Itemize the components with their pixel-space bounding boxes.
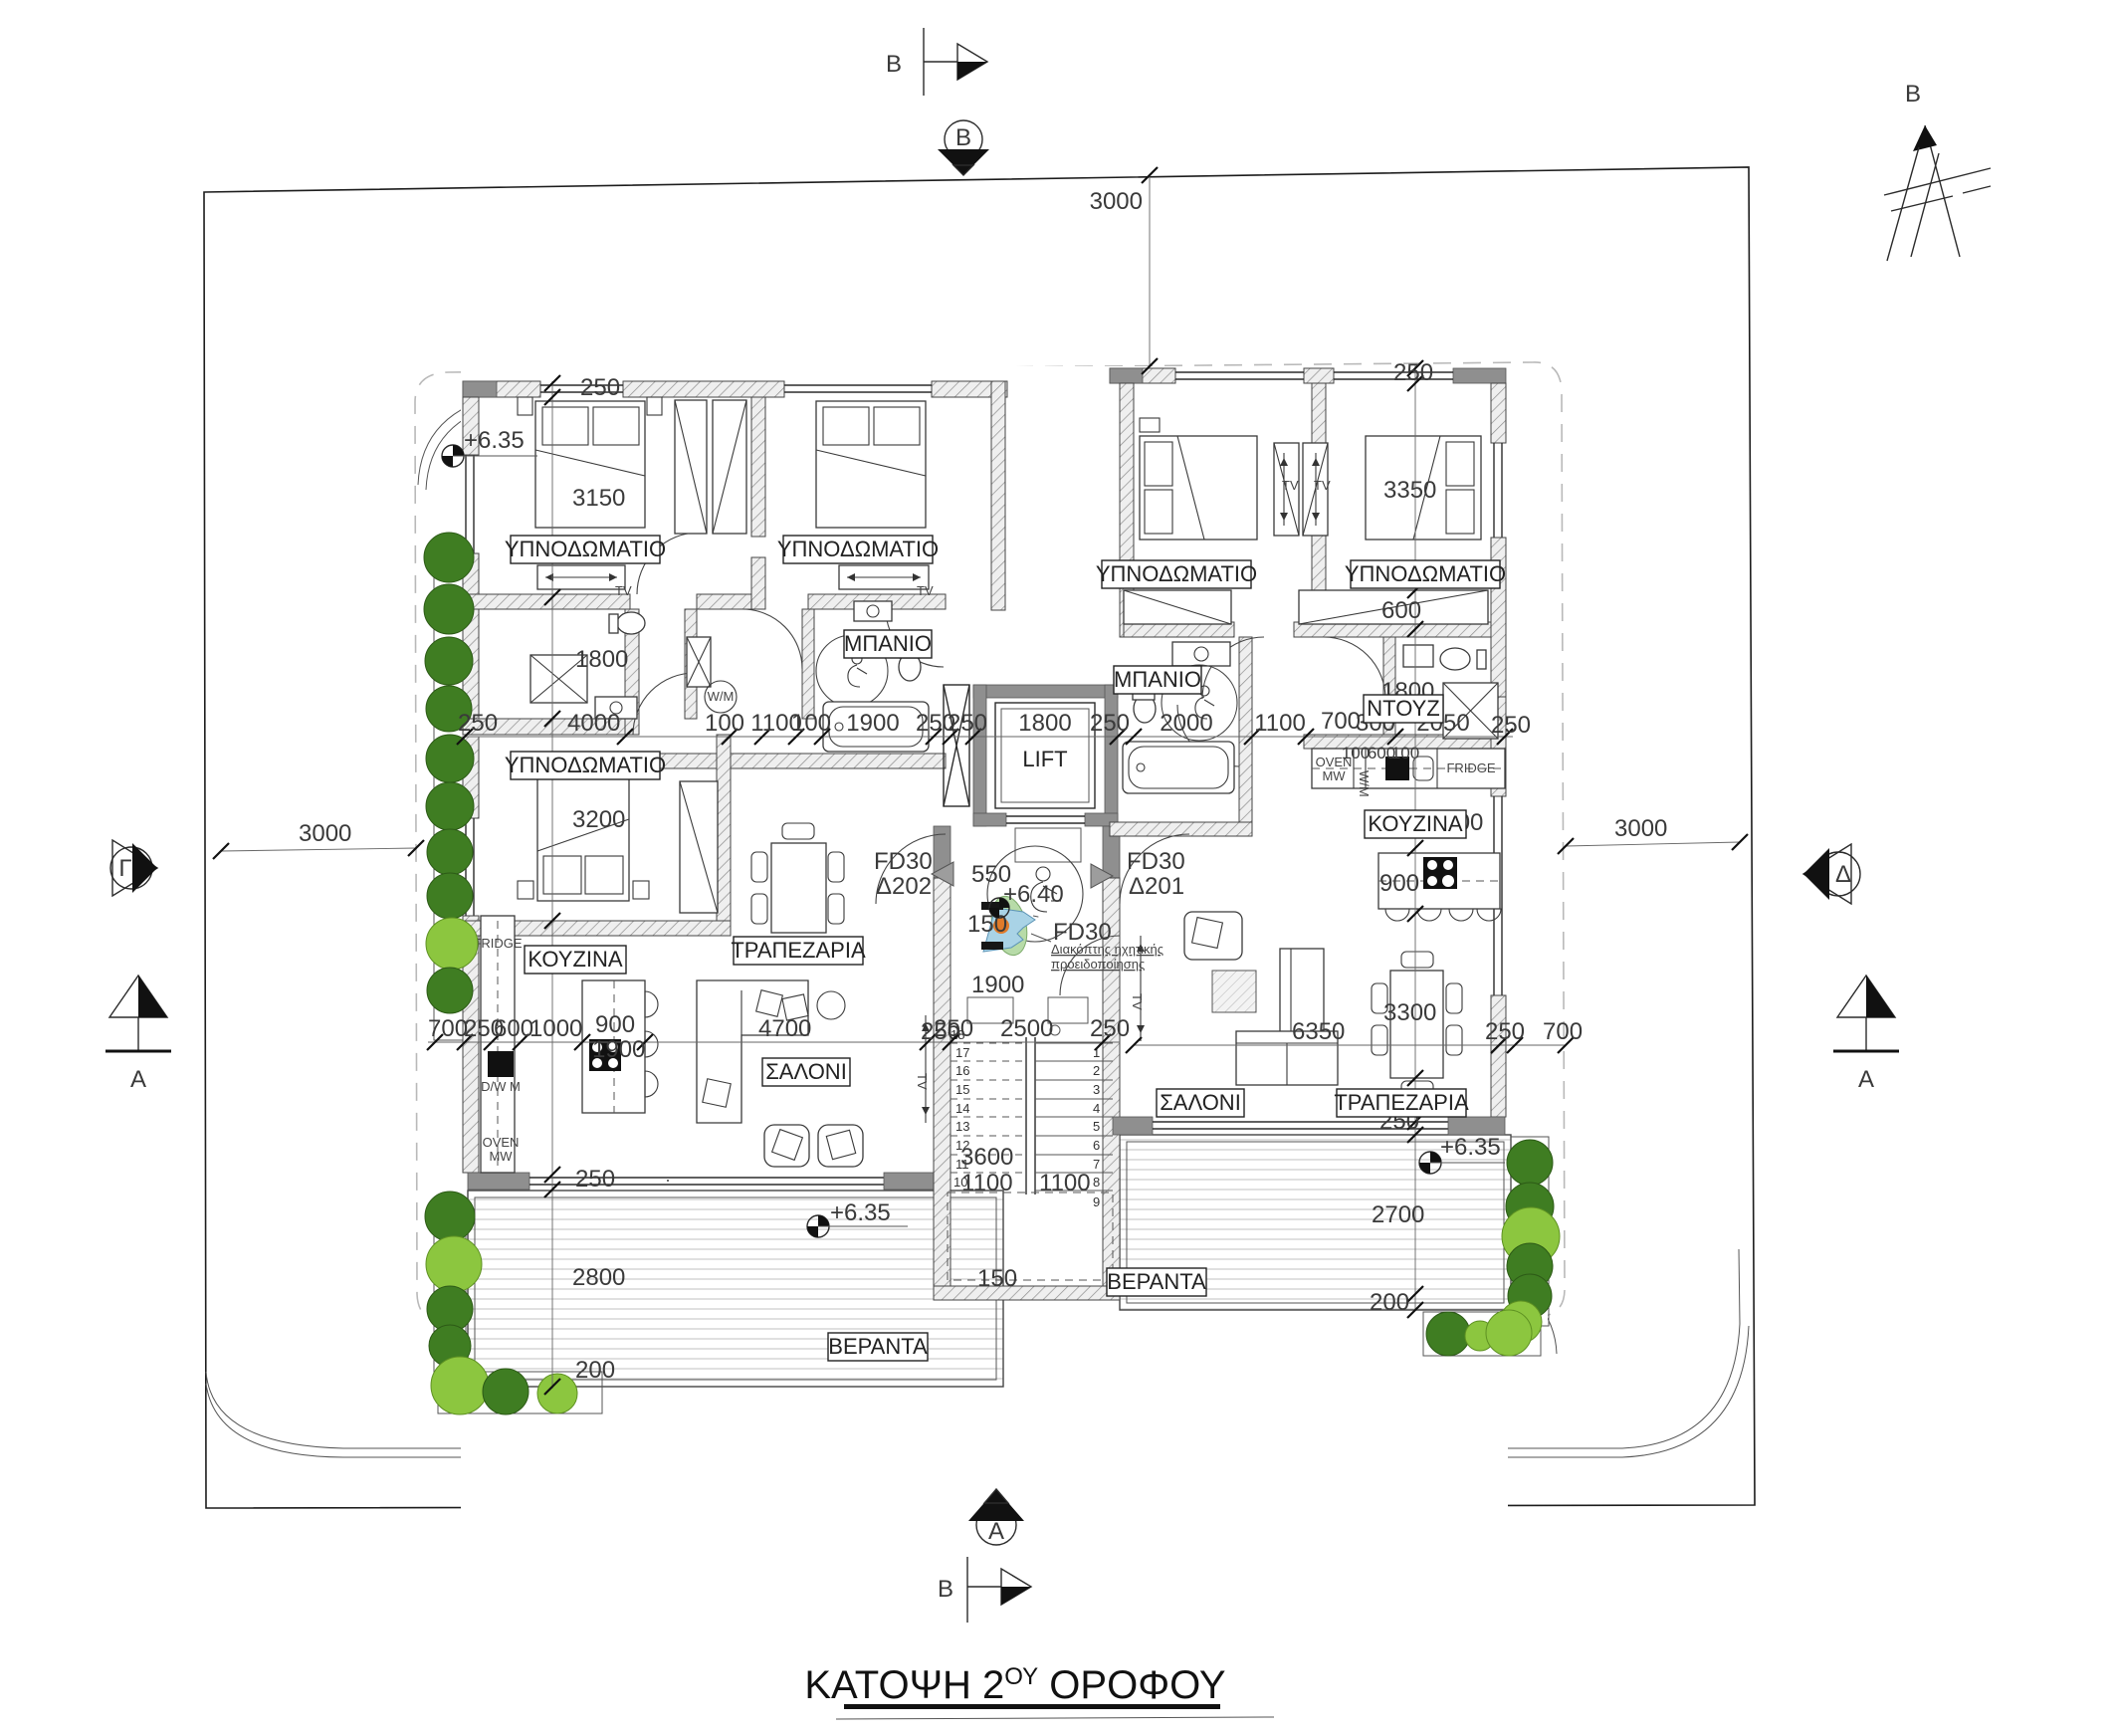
dim-1900-low: 1900	[592, 1036, 645, 1063]
wm-right-label: W/M	[1357, 770, 1372, 797]
svg-text:+6.35: +6.35	[464, 427, 525, 454]
dim-250-top-left: 250	[580, 374, 620, 401]
dim-1900-tub: 1900	[846, 710, 899, 737]
dim-900-right: 900	[1379, 870, 1419, 897]
svg-text:ΜΠΑΝΙΟ: ΜΠΑΝΙΟ	[844, 631, 932, 656]
stair-num-3: 3	[1093, 1082, 1100, 1097]
stair-num-4: 4	[1093, 1101, 1100, 1116]
dim-100c: 100	[1342, 744, 1370, 762]
dim-3350: 3350	[1383, 477, 1436, 504]
dim-600-low: 600	[494, 1015, 533, 1042]
stair-num-17: 17	[955, 1045, 969, 1060]
section-a-left: A	[106, 976, 171, 1093]
dim-250-veranda-left: 250	[575, 1166, 615, 1193]
dim-1900-hall: 1900	[971, 972, 1024, 998]
dim-right-3000: 3000	[1614, 815, 1667, 842]
north-arrow: Β	[1884, 81, 1991, 261]
svg-text:+6.35: +6.35	[830, 1199, 891, 1226]
section-a-right: A	[1833, 976, 1899, 1093]
svg-text:B: B	[955, 124, 971, 151]
wardrobe-right-mid: TV TV	[1274, 443, 1331, 536]
label-shower-right: ΝΤΟΥΖ	[1364, 695, 1443, 723]
dim-250a: 250	[458, 710, 498, 737]
label-living-left: ΣΑΛΟΝΙ	[762, 1058, 850, 1086]
dim-2000: 2000	[1160, 710, 1212, 737]
svg-text:ΚΟΥΖΙΝΑ: ΚΟΥΖΙΝΑ	[1368, 811, 1463, 836]
label-bedroom-4: ΥΠΝΟΔΩΜΑΤΙΟ	[1096, 560, 1257, 588]
stair-num-6: 6	[1093, 1138, 1100, 1153]
bed-2	[816, 401, 926, 528]
stair-num-7: 7	[1093, 1157, 1100, 1172]
dim-250-stair-r: 250	[1090, 1015, 1130, 1042]
dim-250d: 250	[1090, 710, 1130, 737]
dim-250-top-right: 250	[1393, 359, 1433, 386]
svg-text:ΤΡΑΠΕΖΑΡΙΑ: ΤΡΑΠΕΖΑΡΙΑ	[1334, 1090, 1469, 1115]
label-veranda-right: ΒΕΡΑΝΤΑ	[1107, 1268, 1206, 1296]
label-kitchen-right: ΚΟΥΖΙΝΑ	[1365, 810, 1466, 838]
dim-3200: 3200	[572, 806, 625, 833]
label-veranda-left: ΒΕΡΑΝΤΑ	[828, 1333, 928, 1361]
mw-left-label: MW	[489, 1149, 513, 1164]
dim-3600: 3600	[960, 1144, 1013, 1171]
section-circle-b-top: B	[938, 120, 989, 175]
dwm-label: D/W M	[481, 1079, 521, 1094]
note-line2: προειδοποίησης	[1051, 957, 1145, 972]
dim-1800-bath: 1800	[575, 646, 628, 673]
dim-top-3000: 3000	[1090, 188, 1143, 215]
tv-label-4: TV	[1282, 478, 1299, 493]
svg-text:ΥΠΝΟΔΩΜΑΤΙΟ: ΥΠΝΟΔΩΜΑΤΙΟ	[777, 537, 939, 561]
svg-text:ΣΑΛΟΝΙ: ΣΑΛΟΝΙ	[765, 1059, 847, 1084]
dim-600: 600	[1381, 597, 1421, 624]
stair-num-16: 16	[955, 1063, 969, 1078]
tv-label-5: TV	[1314, 478, 1331, 493]
fridge-right-label: FRIDGE	[1446, 760, 1495, 775]
svg-text:B: B	[938, 1576, 953, 1603]
lift-label: LIFT	[1022, 747, 1067, 771]
stair-num-2: 2	[1093, 1063, 1100, 1078]
low-wardrobes-right	[1124, 590, 1488, 624]
tv-label-1: TV	[615, 583, 632, 598]
mw-right-label: MW	[1322, 768, 1346, 783]
section-b-top: B	[886, 28, 987, 96]
label-living-right: ΣΑΛΟΝΙ	[1157, 1089, 1244, 1117]
dim-250-700b: 700	[1543, 1018, 1583, 1045]
tv-label-3: TV	[915, 1073, 930, 1090]
note-line1: Διακόπτης ηχητικής	[1051, 942, 1164, 957]
dim-1000-low: 1000	[529, 1015, 582, 1042]
dim-250-stair-l: 250	[934, 1015, 973, 1042]
wm-left-label: W/M	[708, 689, 735, 704]
svg-text:ΒΕΡΑΝΤΑ: ΒΕΡΑΝΤΑ	[828, 1334, 928, 1359]
svg-text:ΥΠΝΟΔΩΜΑΤΙΟ: ΥΠΝΟΔΩΜΑΤΙΟ	[1345, 561, 1506, 586]
stair-num-8: 8	[1093, 1175, 1100, 1190]
floor-plan-page: 18 17 16 15 14 13 12 11 10 1 2 3 4 5 6 7…	[0, 0, 2116, 1736]
label-bedroom-1: ΥΠΝΟΔΩΜΑΤΙΟ	[505, 536, 666, 563]
label-kitchen-left: ΚΟΥΖΙΝΑ	[525, 946, 626, 974]
label-dining-right: ΤΡΑΠΕΖΑΡΙΑ	[1334, 1089, 1469, 1117]
dim-150-stair: 150	[977, 1265, 1017, 1292]
svg-text:ΚΟΥΖΙΝΑ: ΚΟΥΖΙΝΑ	[528, 947, 623, 972]
svg-text:Β: Β	[1905, 81, 1921, 108]
stair-num-15: 15	[955, 1082, 969, 1097]
dim-700-low: 700	[428, 1015, 468, 1042]
stair-num-5: 5	[1093, 1119, 1100, 1134]
svg-text:B: B	[886, 51, 902, 78]
svg-text:A: A	[130, 1066, 146, 1093]
oven-left-label: OVEN	[483, 1135, 520, 1150]
fd30-right: FD30	[1127, 848, 1185, 875]
svg-text:ΝΤΟΥΖ: ΝΤΟΥΖ	[1367, 696, 1439, 721]
svg-text:+6.40: +6.40	[1003, 881, 1064, 908]
section-gamma-left: Γ	[110, 840, 157, 896]
dim-150-hall: 150	[967, 911, 1007, 938]
svg-text:Δ: Δ	[1835, 861, 1851, 888]
fd30-left: FD30	[874, 848, 933, 875]
bed-3	[518, 776, 649, 901]
bed-4	[1140, 418, 1257, 540]
d202: Δ202	[876, 873, 932, 900]
label-bedroom-2: ΥΠΝΟΔΩΜΑΤΙΟ	[777, 536, 939, 563]
svg-text:Γ: Γ	[118, 855, 131, 882]
fridge-left-label: FRIDGE	[473, 936, 522, 951]
svg-text:A: A	[988, 1518, 1004, 1545]
svg-text:ΜΠΑΝΙΟ: ΜΠΑΝΙΟ	[1114, 667, 1201, 692]
dim-100b: 100	[791, 710, 831, 737]
svg-text:ΥΠΝΟΔΩΜΑΤΙΟ: ΥΠΝΟΔΩΜΑΤΙΟ	[1096, 561, 1257, 586]
svg-text:ΤΡΑΠΕΖΑΡΙΑ: ΤΡΑΠΕΖΑΡΙΑ	[731, 938, 866, 963]
svg-text:+6.35: +6.35	[1440, 1134, 1501, 1161]
dim-left-3000: 3000	[299, 820, 351, 847]
dim-200-right: 200	[1370, 1289, 1409, 1316]
svg-text:A: A	[1858, 1066, 1874, 1093]
dim-1100-stair-b: 1100	[1039, 1170, 1091, 1196]
svg-text:ΥΠΝΟΔΩΜΑΤΙΟ: ΥΠΝΟΔΩΜΑΤΙΟ	[505, 753, 666, 777]
label-bath-right: ΜΠΑΝΙΟ	[1114, 666, 1201, 694]
dim-3150: 3150	[572, 485, 625, 512]
dim-1100b: 1100	[1254, 710, 1306, 737]
tv-label-6: TV	[1130, 993, 1145, 1010]
dim-3300: 3300	[1383, 999, 1436, 1026]
wardrobe-bed3	[680, 781, 718, 913]
dim-1800-lift: 1800	[1018, 710, 1071, 737]
dim-4000: 4000	[567, 710, 620, 737]
label-bedroom-3: ΥΠΝΟΔΩΜΑΤΙΟ	[505, 752, 666, 779]
d201: Δ201	[1129, 873, 1184, 900]
label-bedroom-5: ΥΠΝΟΔΩΜΑΤΙΟ	[1345, 560, 1506, 588]
dim-250e: 250	[1491, 712, 1531, 739]
label-bath-left: ΜΠΑΝΙΟ	[844, 630, 932, 658]
dim-200-left: 200	[575, 1357, 615, 1384]
dim-2700: 2700	[1372, 1201, 1424, 1228]
dim-250-700a: 250	[1485, 1018, 1525, 1045]
dim-1100-stair-a: 1100	[961, 1170, 1013, 1196]
dim-900-low: 900	[595, 1011, 635, 1038]
stair-num-9: 9	[1093, 1194, 1100, 1209]
dim-6350: 6350	[1292, 1018, 1345, 1045]
svg-text:ΥΠΝΟΔΩΜΑΤΙΟ: ΥΠΝΟΔΩΜΑΤΙΟ	[505, 537, 666, 561]
dim-250c: 250	[948, 710, 987, 737]
dim-100a: 100	[705, 710, 744, 737]
label-dining-left: ΤΡΑΠΕΖΑΡΙΑ	[731, 937, 866, 965]
section-delta-right: Δ	[1803, 844, 1860, 904]
dim-2500: 2500	[1000, 1015, 1053, 1042]
floor-plan-drawing: 18 17 16 15 14 13 12 11 10 1 2 3 4 5 6 7…	[0, 0, 2116, 1736]
svg-text:ΒΕΡΑΝΤΑ: ΒΕΡΑΝΤΑ	[1107, 1269, 1206, 1294]
svg-text:ΣΑΛΟΝΙ: ΣΑΛΟΝΙ	[1160, 1090, 1241, 1115]
dim-4700: 4700	[758, 1015, 811, 1042]
dim-2800: 2800	[572, 1264, 625, 1291]
stair-num-13: 13	[955, 1119, 969, 1134]
tv-label-2: TV	[917, 583, 934, 598]
stair-num-14: 14	[955, 1101, 969, 1116]
